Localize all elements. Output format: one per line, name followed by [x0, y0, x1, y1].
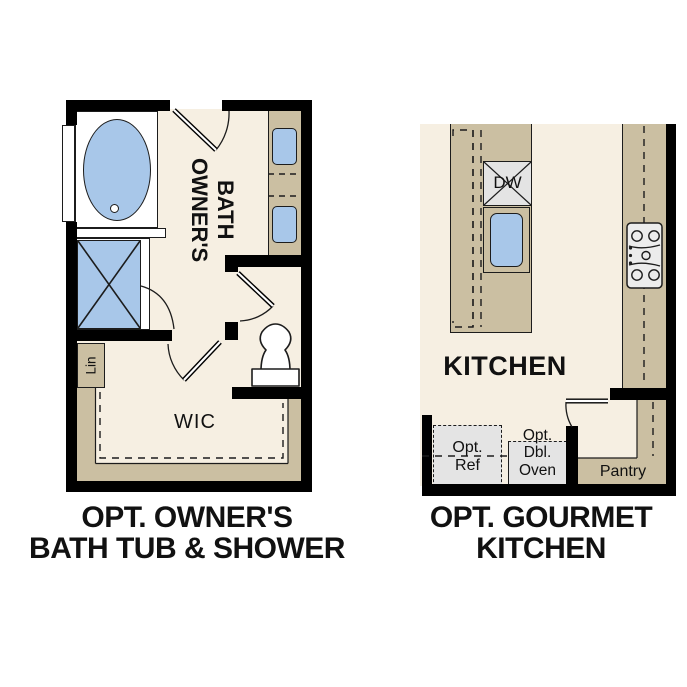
oven-label: Opt. Dbl. Oven	[508, 419, 567, 487]
wic-label: WIC	[155, 410, 235, 434]
wall	[66, 481, 312, 492]
bath-tub-platform	[75, 111, 158, 228]
bath-tub	[83, 119, 151, 221]
wall	[232, 387, 312, 399]
owners-bath-label: OWNER'S BATH	[186, 145, 238, 275]
wall	[301, 100, 312, 492]
wall	[566, 426, 578, 486]
vanity-sink-1	[272, 128, 297, 165]
tub-drain	[110, 204, 119, 213]
kitchen-caption-line1: OPT. GOURMET	[398, 502, 684, 533]
pantry-label: Pantry	[580, 461, 666, 483]
ref-label: Opt. Ref	[433, 431, 502, 483]
wall	[66, 330, 172, 341]
dishwasher-label: DW	[483, 168, 532, 198]
bath-plan: Lin	[62, 100, 312, 492]
vanity-sink-2	[272, 206, 297, 243]
bath-caption-line1: OPT. OWNER'S	[6, 502, 368, 533]
kitchen-caption-line2: KITCHEN	[398, 533, 684, 564]
linen-label-wrap: Lin	[78, 344, 104, 387]
wall	[222, 100, 312, 111]
island-sink	[490, 213, 523, 267]
cooktop-counter	[622, 124, 666, 388]
floorplan-sheet: Lin	[0, 0, 687, 687]
kitchen-plan: KITCHEN DW Opt. Ref Opt. Dbl. Oven Pantr…	[420, 124, 676, 496]
wall	[66, 222, 77, 492]
wall	[232, 255, 312, 267]
wall	[66, 100, 77, 125]
tub-deck	[75, 228, 166, 238]
linen-label: Lin	[83, 356, 98, 374]
kitchen-caption: OPT. GOURMET KITCHEN	[398, 502, 684, 564]
wall	[666, 124, 676, 496]
wic-shelf-bottom	[77, 463, 301, 481]
kitchen-label: KITCHEN	[425, 350, 585, 382]
wall	[66, 100, 170, 111]
wall	[225, 322, 238, 340]
bath-caption: OPT. OWNER'S BATH TUB & SHOWER	[6, 502, 368, 564]
linen-closet: Lin	[77, 343, 105, 388]
wall	[610, 388, 666, 400]
shower-pan	[77, 240, 141, 329]
bath-caption-line2: BATH TUB & SHOWER	[6, 533, 368, 564]
window	[62, 125, 75, 222]
